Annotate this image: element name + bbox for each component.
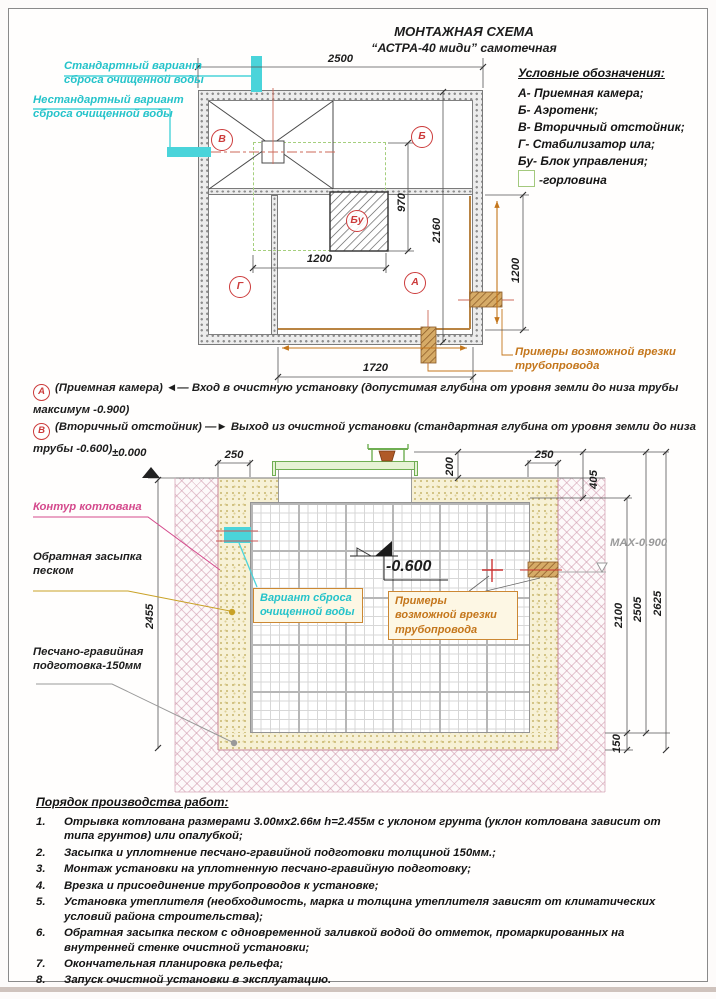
section-soil-bottom: [175, 750, 605, 792]
procedure-item: 5.Установка утеплителя (необходимость, м…: [36, 895, 688, 924]
section-box-pipe-examples: Примеры возможной врезки трубопровода: [388, 591, 518, 640]
section-level-max900: MAX-0.900: [610, 537, 667, 551]
procedure-item: 1.Отрывка котлована размерами 3.00мх2.66…: [36, 815, 688, 844]
section-sand-top-left: [250, 478, 278, 502]
procedure-item: 6.Обратная засыпка песком с одновременно…: [36, 926, 688, 955]
drawing-sheet: МОНТАЖНАЯ СХЕМА “АСТРА-40 миди” самотечн…: [0, 0, 716, 999]
section-dim-mid: 2505: [632, 597, 646, 622]
legend-item: В- Вторичный отстойник;: [518, 119, 698, 136]
plan-label-nonstandard-discharge: Нестандартный вариант сброса очищенной в…: [33, 94, 185, 122]
section-dim-backfill-left: 250: [214, 449, 254, 463]
section-dim-total: 2625: [652, 591, 666, 616]
plan-marker-b: Б: [411, 126, 433, 148]
plan-dim-right-inlet: 1200: [510, 258, 524, 283]
section-tank-lid: [274, 461, 416, 470]
plan-marker-v: В: [211, 129, 233, 151]
section-label-bed: Песчано-гравийная подготовка-150мм: [33, 646, 161, 674]
procedure-item: 7.Окончательная планировка рельефа;: [36, 957, 688, 971]
plan-dim-right-height: 2160: [431, 218, 445, 243]
section-sand-bed: [218, 733, 558, 750]
plan-neck-outline: [253, 142, 386, 251]
section-soil-right: [558, 478, 605, 752]
section-sand-left: [218, 478, 250, 733]
note-a-cont: максимум -0.900): [33, 403, 698, 418]
section-sand-top-right: [412, 478, 530, 502]
plan-label-standard-discharge: Стандартный вариант сброса очищенной вод…: [64, 60, 204, 88]
section-dim-depth: 2455: [144, 604, 158, 629]
section-label-backfill: Обратная засыпка песком: [33, 551, 151, 579]
plan-dim-top-width: 2500: [198, 53, 483, 67]
plan-marker-g: Г: [229, 276, 251, 298]
arrow-left-icon: ◄—: [166, 382, 189, 394]
legend-item: А- Приемная камера;: [518, 85, 698, 102]
drawing-title: МОНТАЖНАЯ СХЕМА: [340, 24, 588, 40]
note-b-marker: В: [33, 423, 50, 440]
legend-item: Бу- Блок управления;: [518, 153, 698, 170]
procedure-list: Порядок производства работ: 1.Отрывка ко…: [36, 795, 688, 990]
section-level-zero: ±0.000: [112, 447, 146, 461]
procedure-item: 4.Врезка и присоединение трубопроводов к…: [36, 879, 688, 893]
section-lid-flange-left: [272, 461, 276, 476]
plan-marker-bu: Бу: [346, 210, 368, 232]
procedure-item: 3.Монтаж установки на уплотненную песчан…: [36, 862, 688, 876]
plan-label-pipe-examples: Примеры возможной врезки трубопровода: [515, 346, 695, 374]
section-lid-flange-right: [414, 461, 418, 476]
section-level-minus600: -0.600: [386, 557, 431, 577]
plan-marker-a: А: [404, 272, 426, 294]
legend-item: Г- Стабилизатор ила;: [518, 136, 698, 153]
section-sand-right: [530, 478, 558, 733]
note-a: А(Приемная камера) ◄— Вход в очистную ус…: [33, 381, 698, 401]
procedure-item: 8.Запуск очистной установки в эксплуатац…: [36, 973, 688, 987]
plan-dim-bottom: 1720: [278, 362, 473, 376]
plan-dim-bu-width: 1200: [253, 253, 386, 267]
section-dim-lid: 200: [444, 457, 458, 476]
section-dim-backfill-right: 250: [524, 449, 564, 463]
section-tank-neck: [278, 467, 412, 503]
section-soil-left: [175, 478, 218, 752]
section-dim-body: 2100: [613, 603, 627, 628]
arrow-right-icon: —►: [205, 421, 228, 433]
neck-symbol-icon: [518, 170, 535, 187]
note-a-marker: А: [33, 384, 50, 401]
plan-dim-bu-height: 970: [396, 193, 410, 212]
section-dim-bed: 150: [611, 734, 625, 753]
section-box-discharge-variant: Вариант сброса очищенной воды: [253, 588, 363, 623]
section-dim-top: 405: [588, 470, 602, 489]
note-b: В(Вторичный отстойник) —► Выход из очист…: [33, 420, 698, 440]
legend: Условные обозначения: А- Приемная камера…: [518, 66, 698, 189]
legend-item-neck: -горловина: [518, 170, 698, 189]
section-label-contour: Контур котлована: [33, 501, 142, 515]
procedure-title: Порядок производства работ:: [36, 795, 688, 810]
procedure-item: 2.Засыпка и уплотнение песчано-гравийной…: [36, 846, 688, 860]
legend-title: Условные обозначения:: [518, 66, 698, 81]
legend-item: Б- Аэротенк;: [518, 102, 698, 119]
